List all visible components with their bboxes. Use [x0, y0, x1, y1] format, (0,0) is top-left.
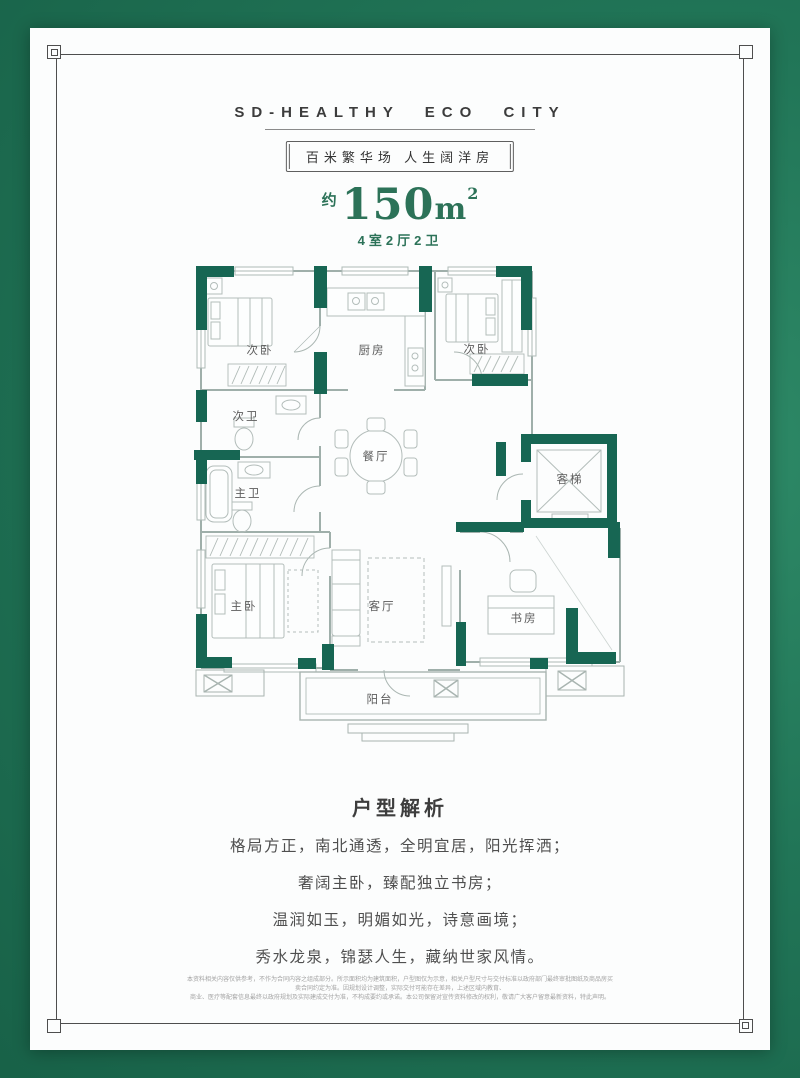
disclaimer-line-1: 本资料相关内容仅供参考，不作为合同内容之组成部分。所示面积均为建筑面积，户型图仅… — [185, 976, 615, 994]
room-label-bath2: 次卫 — [233, 409, 260, 423]
area-unit-sup: 2 — [467, 184, 478, 203]
room-label-master-bath: 主卫 — [235, 487, 262, 500]
disclaimer-line-2: 商业、医疗等配套信息最终以政府规划及实际建成交付为准，不构成要约或承诺。本公司保… — [185, 994, 615, 1003]
area-value: 150 — [342, 180, 435, 230]
analysis-line: 奢阔主卧，臻配独立书房； — [30, 865, 770, 902]
room-label-study: 书房 — [511, 612, 538, 625]
room-label-kitchen: 厨房 — [359, 344, 386, 357]
poster-background: SD-HEALTHY ECO CITY 百米繁华场 人生阔洋房 约150m2 4… — [0, 0, 800, 1078]
room-label-bedroom2-right: 次卧 — [464, 342, 491, 356]
analysis-line: 温润如玉，明媚如光，诗意画境； — [30, 902, 770, 939]
room-label-balcony: 阳台 — [367, 692, 394, 706]
floorplan-drawing: 次卧 厨房 次卧 次卫 餐厅 客梯 主卫 主卧 客厅 书房 阳台 — [180, 250, 660, 770]
poster-card: SD-HEALTHY ECO CITY 百米繁华场 人生阔洋房 约150m2 4… — [30, 28, 770, 1050]
analysis-lines: 格局方正，南北通透，全明宜居，阳光挥洒； 奢阔主卧，臻配独立书房； 温润如玉，明… — [30, 828, 770, 976]
area-unit: m — [434, 192, 466, 227]
room-label-bedroom2-left: 次卧 — [247, 343, 274, 357]
brand-title: SD-HEALTHY ECO CITY — [30, 104, 770, 121]
analysis-line: 格局方正，南北通透，全明宜居，阳光挥洒； — [30, 828, 770, 865]
analysis-line: 秀水龙泉，锦瑟人生，藏纳世家风情。 — [30, 939, 770, 976]
room-label-dining: 餐厅 — [363, 449, 390, 463]
analysis-title: 户型解析 — [30, 792, 770, 821]
room-label-master-bedroom: 主卧 — [231, 600, 258, 613]
brand-divider — [265, 129, 535, 130]
balcony-structure — [196, 666, 624, 741]
slogan-text: 百米繁华场 人生阔洋房 — [289, 144, 511, 169]
furniture-layer — [206, 278, 601, 646]
room-label-living: 客厅 — [369, 599, 396, 613]
slogan-box: 百米繁华场 人生阔洋房 — [286, 141, 514, 172]
legal-disclaimer: 本资料相关内容仅供参考，不作为合同内容之组成部分。所示面积均为建筑面积，户型图仅… — [185, 976, 615, 1003]
rooms-summary: 4室2厅2卫 — [30, 230, 770, 249]
area-approx-label: 约 — [322, 192, 339, 209]
room-label-elevator: 客梯 — [557, 472, 584, 486]
area-title: 约150m2 — [30, 180, 770, 230]
